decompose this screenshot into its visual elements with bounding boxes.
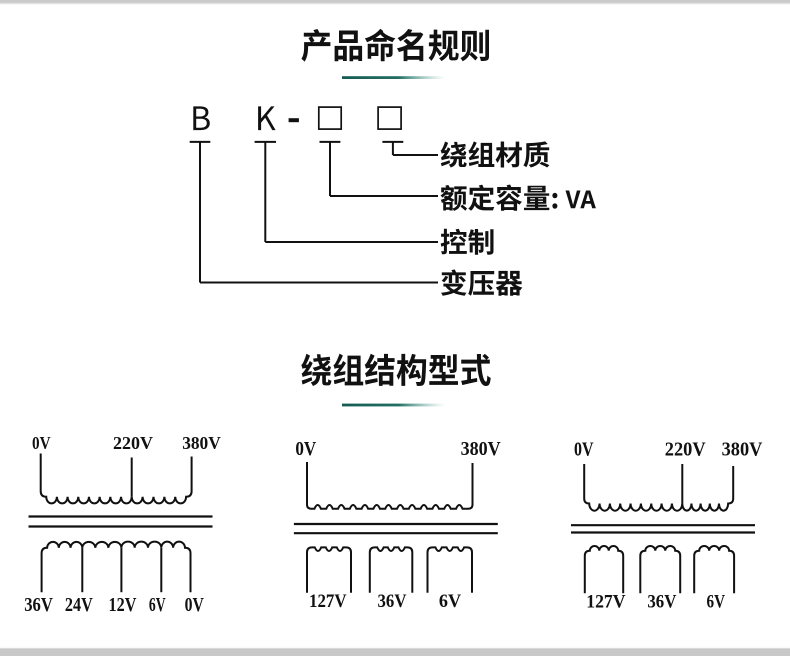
- svg-text:0V: 0V: [185, 594, 205, 616]
- svg-text:24V: 24V: [65, 594, 93, 616]
- svg-text:12V: 12V: [109, 594, 137, 616]
- svg-text:0V: 0V: [574, 440, 594, 461]
- svg-text:220V: 220V: [665, 440, 706, 461]
- svg-text:127V: 127V: [586, 592, 626, 613]
- svg-text:6V: 6V: [707, 592, 726, 613]
- svg-text:36V: 36V: [647, 592, 676, 613]
- svg-text:6V: 6V: [439, 591, 461, 612]
- svg-text:36V: 36V: [24, 594, 53, 616]
- svg-text:380V: 380V: [461, 439, 501, 460]
- svg-text:220V: 220V: [113, 433, 153, 453]
- svg-text:380V: 380V: [722, 440, 763, 461]
- svg-text:127V: 127V: [309, 591, 347, 612]
- svg-text:0V: 0V: [295, 439, 316, 460]
- svg-text:6V: 6V: [149, 594, 166, 616]
- svg-text:0V: 0V: [32, 433, 51, 453]
- svg-text:380V: 380V: [182, 433, 221, 453]
- svg-text:36V: 36V: [378, 591, 407, 612]
